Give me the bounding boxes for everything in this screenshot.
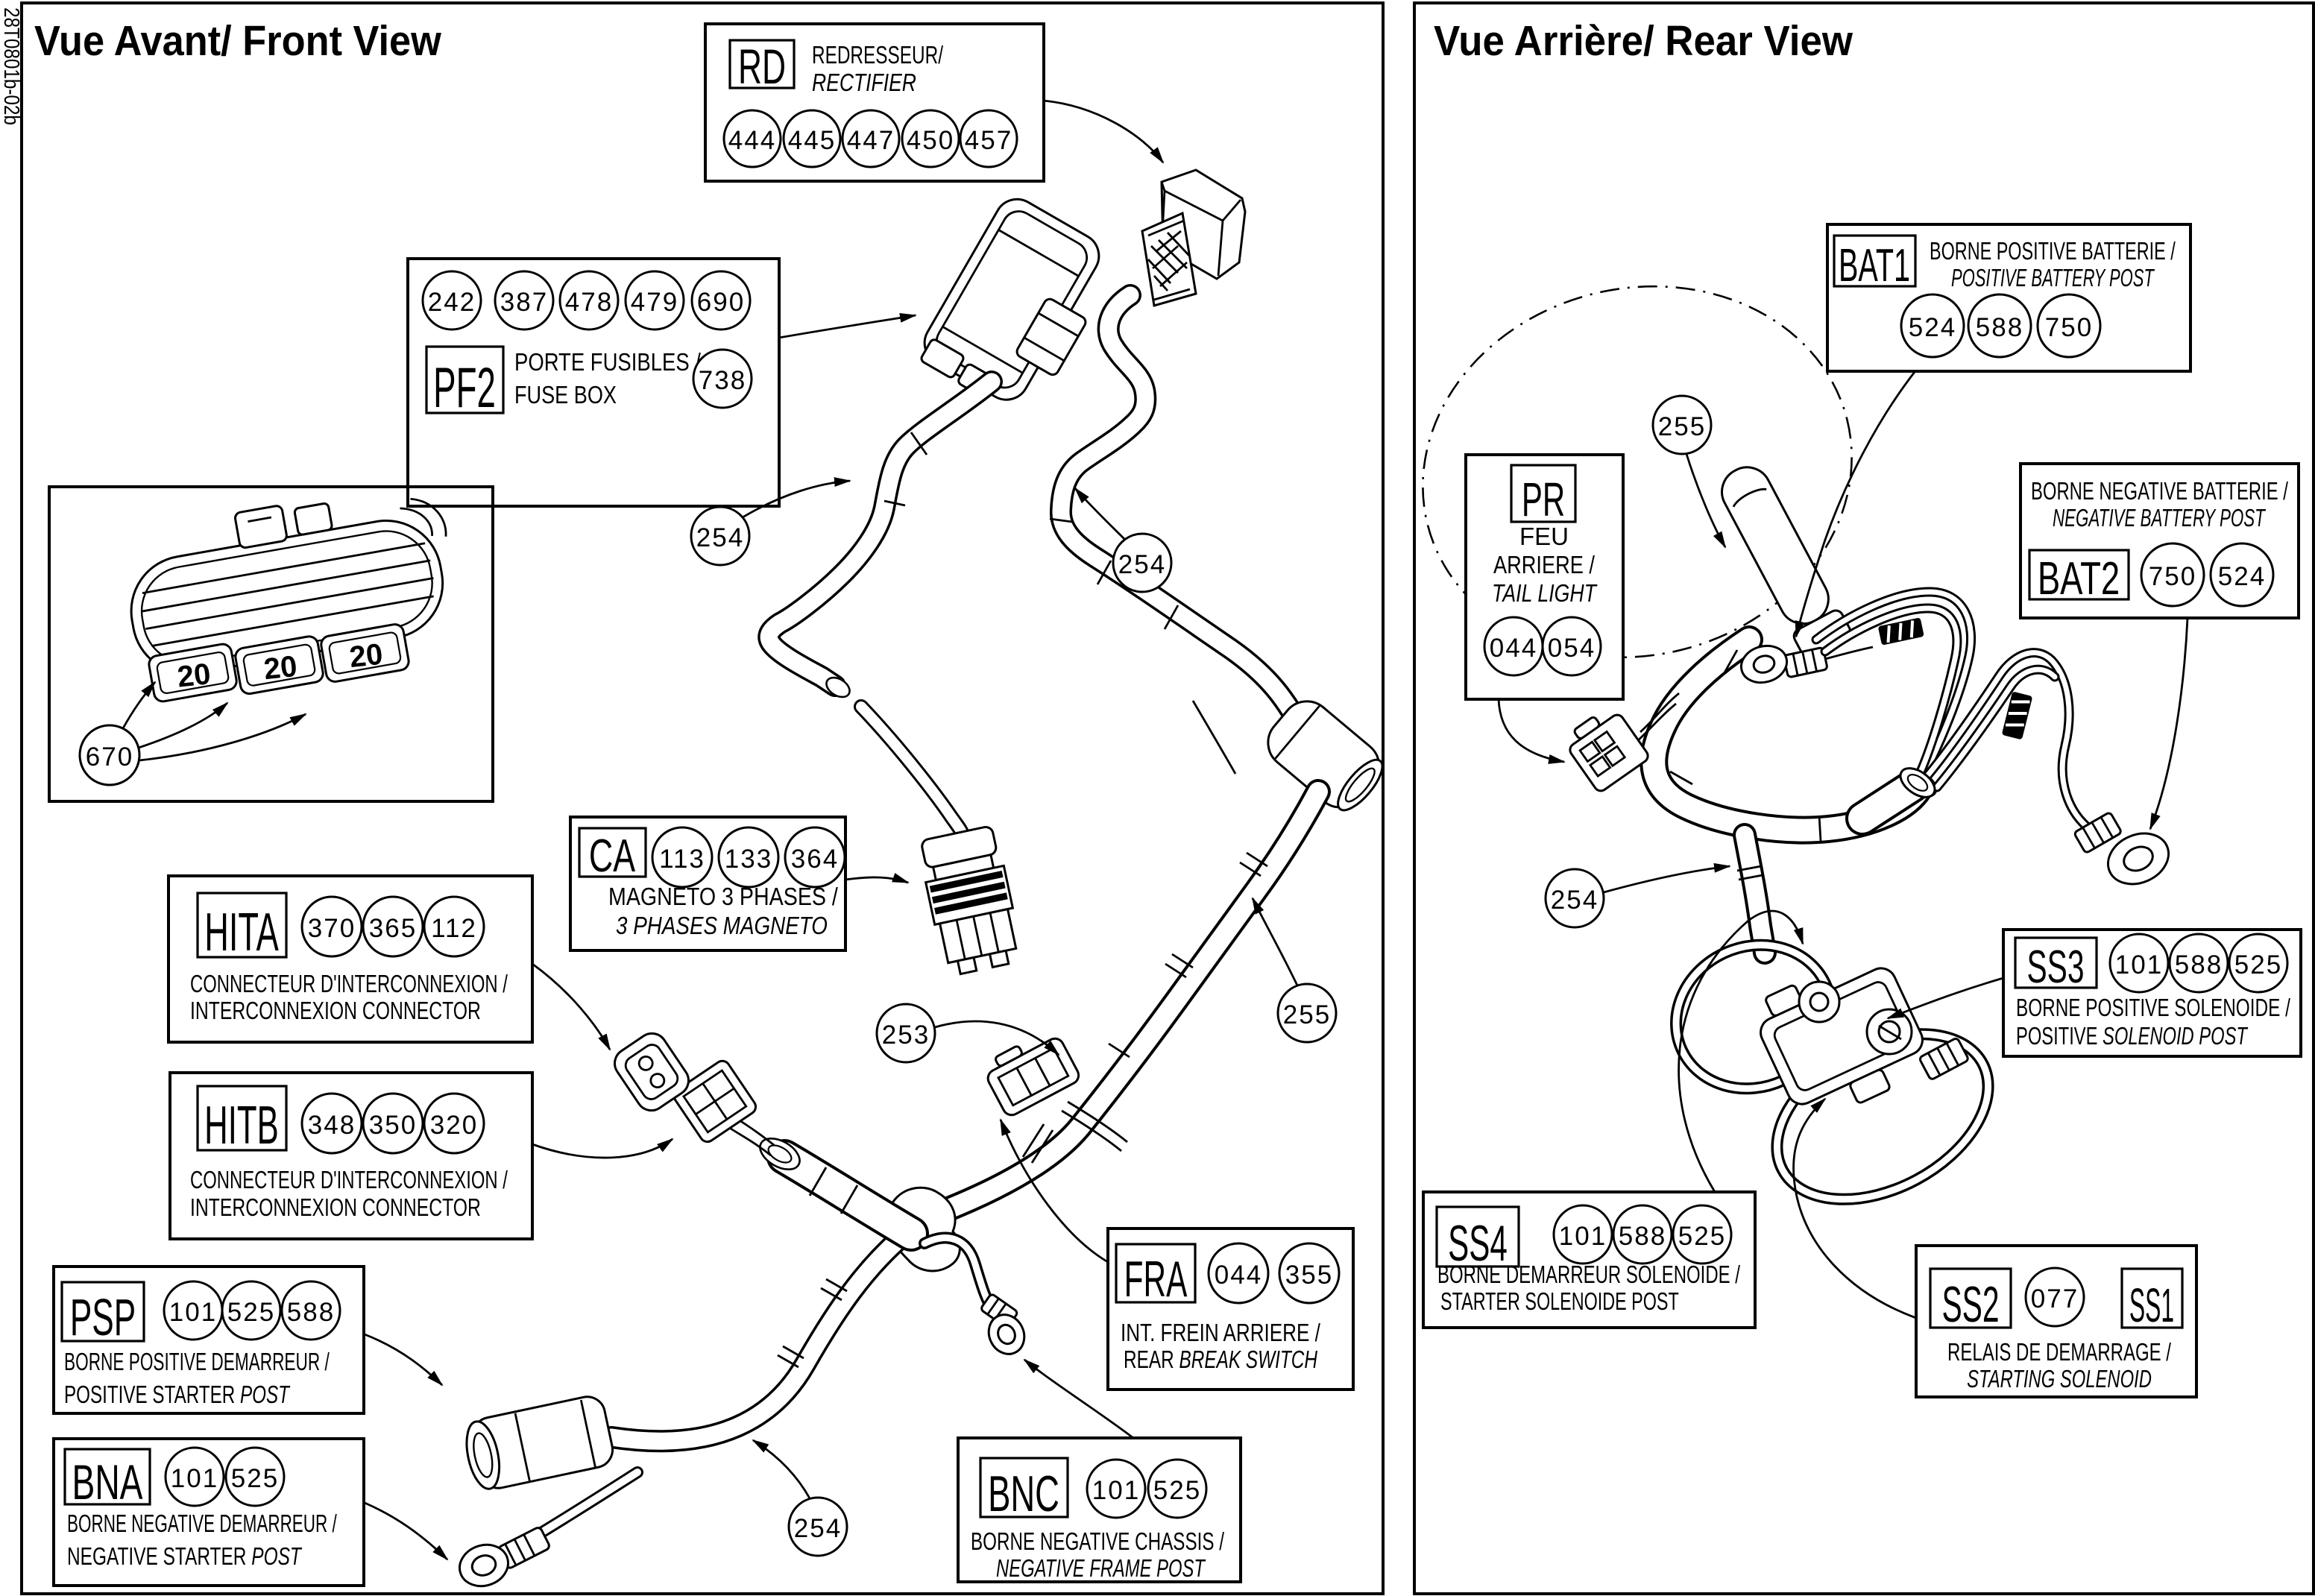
svg-text:738: 738 bbox=[699, 366, 746, 395]
svg-text:255: 255 bbox=[1658, 412, 1706, 441]
svg-text:INTERCONNEXION CONNECTOR: INTERCONNEXION CONNECTOR bbox=[190, 998, 481, 1025]
svg-text:101: 101 bbox=[1092, 1476, 1140, 1505]
svg-text:670: 670 bbox=[86, 742, 133, 772]
svg-text:BNA: BNA bbox=[72, 1455, 143, 1510]
svg-text:PSP: PSP bbox=[70, 1289, 136, 1347]
svg-text:FUSE BOX: FUSE BOX bbox=[514, 382, 617, 409]
svg-text:BORNE DEMARREUR SOLENOIDE /: BORNE DEMARREUR SOLENOIDE / bbox=[1437, 1261, 1741, 1289]
svg-text:044: 044 bbox=[1215, 1261, 1262, 1290]
svg-text:054: 054 bbox=[1548, 634, 1596, 663]
svg-text:BORNE NEGATIVE DEMARREUR /: BORNE NEGATIVE DEMARREUR / bbox=[67, 1510, 337, 1537]
svg-text:PR: PR bbox=[1522, 473, 1565, 526]
svg-text:254: 254 bbox=[1118, 550, 1166, 579]
svg-text:Vue Arrière/ Rear View: Vue Arrière/ Rear View bbox=[1434, 16, 1853, 64]
svg-text:348: 348 bbox=[308, 1111, 356, 1140]
svg-text:113: 113 bbox=[659, 845, 705, 874]
svg-text:444: 444 bbox=[728, 126, 776, 155]
svg-text:SS1: SS1 bbox=[2129, 1278, 2174, 1332]
svg-text:POSITIVE STARTER POST: POSITIVE STARTER POST bbox=[64, 1381, 291, 1408]
svg-text:RECTIFIER: RECTIFIER bbox=[812, 69, 916, 96]
svg-text:525: 525 bbox=[1153, 1476, 1201, 1505]
svg-text:28T0801b-02b: 28T0801b-02b bbox=[0, 7, 24, 125]
svg-text:588: 588 bbox=[1619, 1222, 1666, 1251]
svg-text:355: 355 bbox=[1285, 1261, 1333, 1290]
svg-text:MAGNETO 3 PHASES /: MAGNETO 3 PHASES / bbox=[608, 883, 838, 910]
svg-text:450: 450 bbox=[907, 126, 954, 155]
svg-text:588: 588 bbox=[1976, 313, 2023, 342]
svg-text:POSITIVE BATTERY POST: POSITIVE BATTERY POST bbox=[1951, 265, 2155, 291]
svg-text:690: 690 bbox=[697, 288, 745, 317]
svg-text:CONNECTEUR D'INTERCONNEXION /: CONNECTEUR D'INTERCONNEXION / bbox=[190, 1167, 508, 1194]
svg-text:479: 479 bbox=[631, 288, 678, 317]
svg-text:525: 525 bbox=[227, 1298, 275, 1327]
svg-text:CA: CA bbox=[589, 830, 635, 882]
svg-text:PORTE FUSIBLES /: PORTE FUSIBLES / bbox=[514, 350, 701, 376]
svg-text:525: 525 bbox=[2234, 950, 2282, 980]
svg-text:PF2: PF2 bbox=[433, 356, 496, 420]
svg-text:350: 350 bbox=[369, 1111, 417, 1140]
svg-text:FEU: FEU bbox=[1519, 523, 1569, 550]
svg-text:NEGATIVE STARTER POST: NEGATIVE STARTER POST bbox=[67, 1544, 303, 1571]
svg-text:TAIL LIGHT: TAIL LIGHT bbox=[1492, 580, 1598, 607]
svg-text:044: 044 bbox=[1490, 634, 1537, 663]
svg-text:BORNE POSITIVE SOLENOIDE /: BORNE POSITIVE SOLENOIDE / bbox=[2016, 995, 2291, 1022]
svg-text:INT. FREIN ARRIERE /: INT. FREIN ARRIERE / bbox=[1121, 1319, 1320, 1347]
svg-text:254: 254 bbox=[1551, 886, 1599, 915]
svg-text:HITB: HITB bbox=[204, 1095, 279, 1155]
svg-text:524: 524 bbox=[2218, 562, 2266, 591]
svg-text:255: 255 bbox=[1283, 1000, 1331, 1029]
svg-text:RD: RD bbox=[738, 39, 786, 94]
svg-text:320: 320 bbox=[430, 1111, 478, 1140]
svg-text:BORNE POSITIVE BATTERIE /: BORNE POSITIVE BATTERIE / bbox=[1930, 238, 2176, 265]
svg-text:REDRESSEUR/: REDRESSEUR/ bbox=[812, 42, 944, 69]
svg-text:BORNE POSITIVE DEMARREUR /: BORNE POSITIVE DEMARREUR / bbox=[64, 1348, 330, 1375]
svg-text:INTERCONNEXION CONNECTOR: INTERCONNEXION CONNECTOR bbox=[190, 1195, 481, 1222]
svg-text:077: 077 bbox=[2031, 1284, 2079, 1313]
svg-text:364: 364 bbox=[791, 845, 839, 874]
svg-text:524: 524 bbox=[1909, 313, 1956, 342]
svg-text:SS2: SS2 bbox=[1941, 1275, 1999, 1332]
svg-text:253: 253 bbox=[882, 1021, 930, 1050]
svg-text:RELAIS DE DEMARRAGE /: RELAIS DE DEMARRAGE / bbox=[1947, 1339, 2172, 1366]
svg-text:112: 112 bbox=[431, 914, 477, 943]
svg-text:588: 588 bbox=[2175, 950, 2223, 980]
svg-text:101: 101 bbox=[169, 1298, 217, 1327]
svg-text:457: 457 bbox=[965, 126, 1012, 155]
svg-text:HITA: HITA bbox=[204, 902, 279, 962]
svg-text:588: 588 bbox=[287, 1298, 335, 1327]
svg-text:525: 525 bbox=[1678, 1222, 1726, 1251]
svg-text:REAR BREAK SWITCH: REAR BREAK SWITCH bbox=[1124, 1347, 1317, 1374]
svg-text:NEGATIVE FRAME POST: NEGATIVE FRAME POST bbox=[996, 1555, 1206, 1583]
svg-text:478: 478 bbox=[565, 288, 613, 317]
svg-text:BAT2: BAT2 bbox=[2038, 552, 2120, 605]
svg-text:3 PHASES MAGNETO: 3 PHASES MAGNETO bbox=[616, 912, 828, 940]
svg-text:525: 525 bbox=[231, 1464, 279, 1493]
svg-text:101: 101 bbox=[2115, 950, 2163, 980]
svg-text:445: 445 bbox=[788, 126, 836, 155]
svg-text:STARTER SOLENOIDE POST: STARTER SOLENOIDE POST bbox=[1440, 1288, 1679, 1316]
svg-text:750: 750 bbox=[2149, 562, 2196, 591]
svg-text:20: 20 bbox=[348, 638, 385, 674]
svg-text:254: 254 bbox=[794, 1514, 842, 1543]
svg-text:SS3: SS3 bbox=[2027, 942, 2085, 994]
svg-text:101: 101 bbox=[1559, 1222, 1607, 1251]
svg-text:20: 20 bbox=[176, 657, 212, 693]
svg-text:447: 447 bbox=[847, 126, 895, 155]
svg-text:750: 750 bbox=[2045, 313, 2093, 342]
svg-text:20: 20 bbox=[262, 650, 299, 686]
svg-text:370: 370 bbox=[308, 914, 356, 943]
svg-text:254: 254 bbox=[696, 523, 744, 552]
svg-text:387: 387 bbox=[500, 288, 548, 317]
svg-text:242: 242 bbox=[428, 288, 476, 317]
svg-text:CONNECTEUR D'INTERCONNEXION /: CONNECTEUR D'INTERCONNEXION / bbox=[190, 971, 508, 998]
svg-text:133: 133 bbox=[725, 845, 772, 874]
svg-text:BAT1: BAT1 bbox=[1839, 240, 1910, 291]
svg-text:FRA: FRA bbox=[1124, 1252, 1188, 1308]
svg-text:STARTING SOLENOID: STARTING SOLENOID bbox=[1967, 1366, 2152, 1393]
svg-text:ARRIERE /: ARRIERE / bbox=[1493, 552, 1595, 579]
svg-text:BORNE NEGATIVE CHASSIS /: BORNE NEGATIVE CHASSIS / bbox=[971, 1528, 1225, 1555]
svg-text:Vue Avant/ Front View: Vue Avant/ Front View bbox=[34, 16, 441, 65]
svg-text:NEGATIVE BATTERY POST: NEGATIVE BATTERY POST bbox=[2053, 504, 2266, 532]
svg-text:BNC: BNC bbox=[988, 1466, 1059, 1522]
svg-text:POSITIVE SOLENOID POST: POSITIVE SOLENOID POST bbox=[2016, 1023, 2249, 1050]
svg-text:101: 101 bbox=[171, 1464, 218, 1493]
svg-text:BORNE NEGATIVE BATTERIE /: BORNE NEGATIVE BATTERIE / bbox=[2031, 478, 2288, 505]
svg-text:365: 365 bbox=[369, 914, 417, 943]
